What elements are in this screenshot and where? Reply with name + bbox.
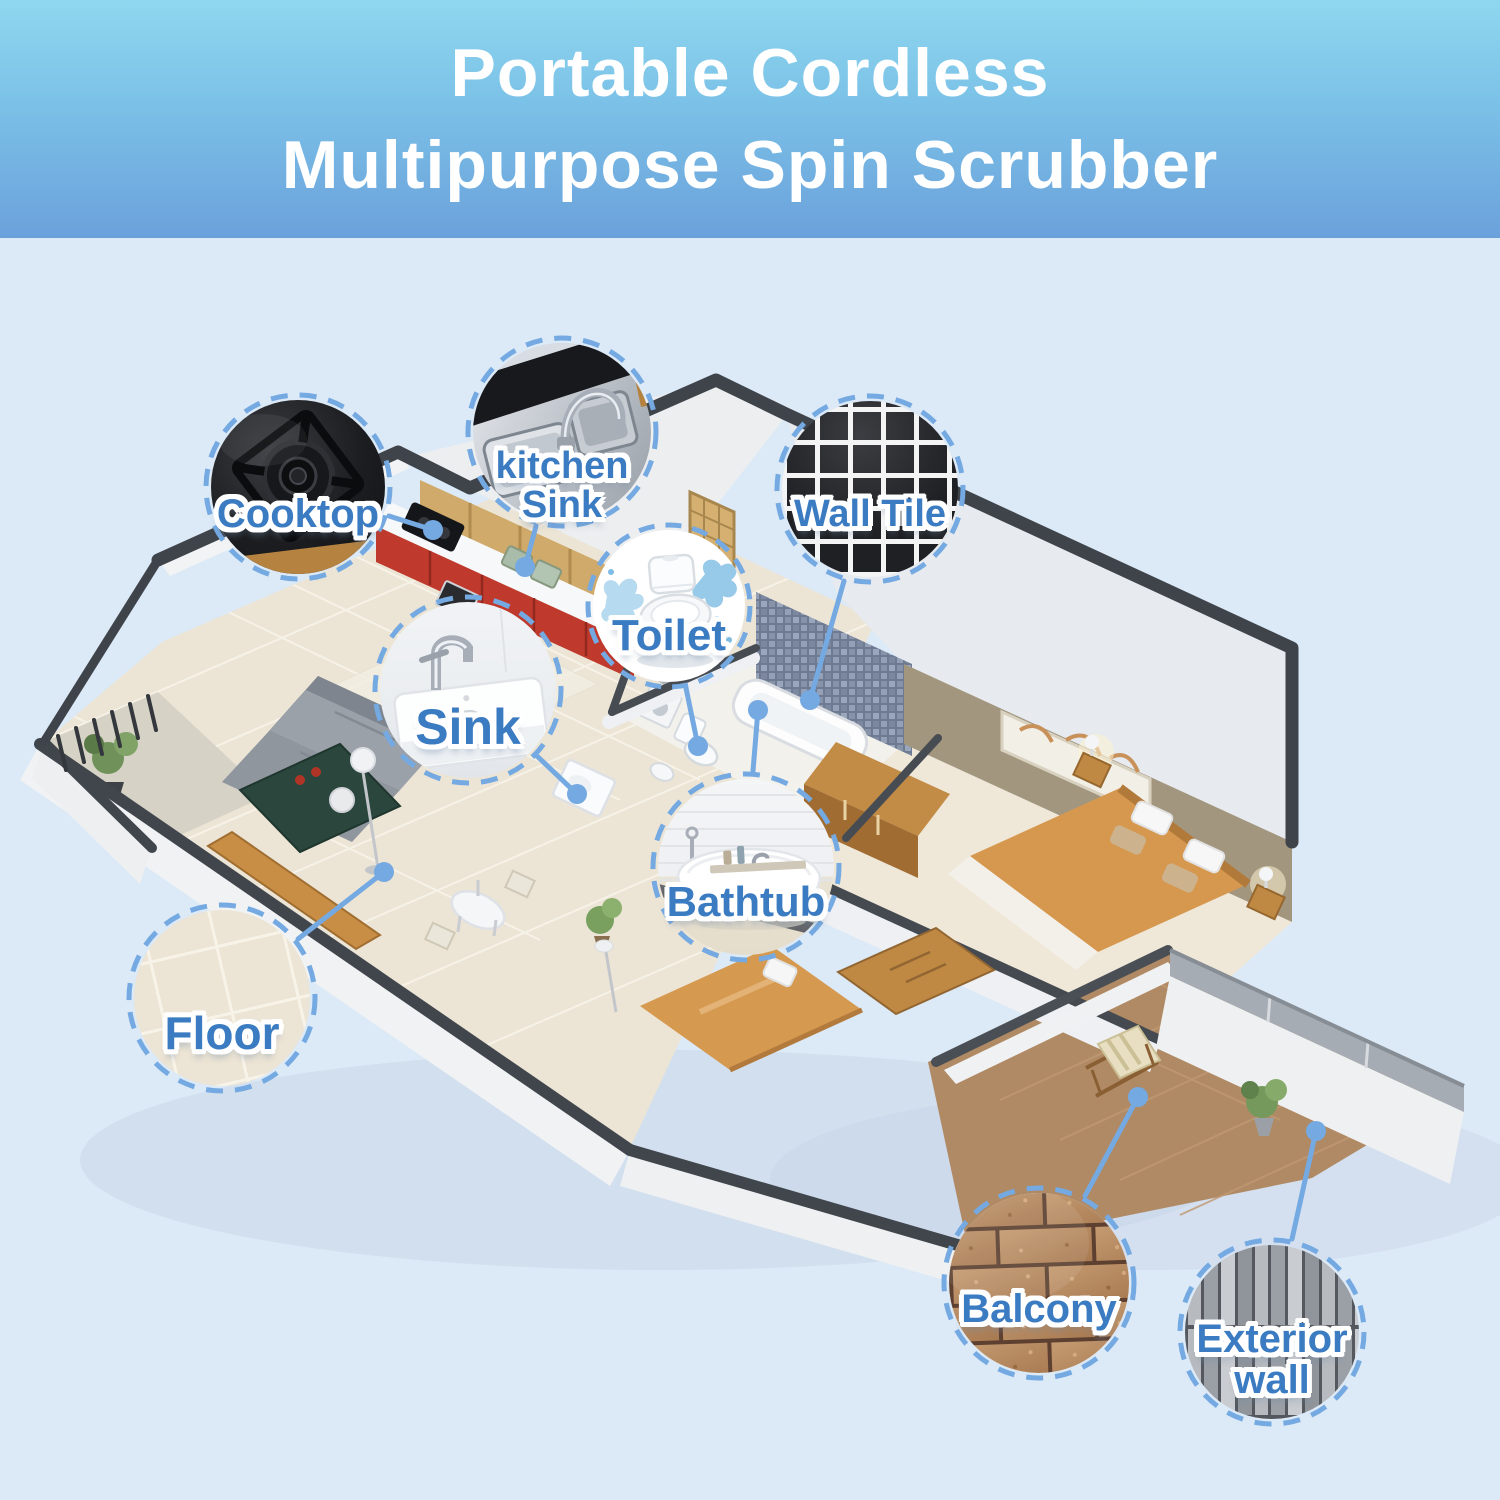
callout-cooktop: Cooktop (203, 392, 393, 582)
callout-balcony: Balcony (941, 1185, 1137, 1381)
callout-floor: Floor (126, 902, 318, 1094)
sink-label: Sink (372, 702, 564, 753)
callout-sink: Sink (372, 594, 564, 786)
callout-exterior-wall: Exterior wall (1177, 1237, 1367, 1427)
wall-tile-photo (782, 401, 958, 577)
callout-toilet: Toilet (585, 522, 753, 690)
floor-photo (134, 910, 310, 1086)
wall-tile-label: Wall Tile (774, 495, 966, 534)
cooktop-label: Cooktop (203, 494, 393, 535)
balcony-photo (949, 1193, 1129, 1373)
kitchen-sink-label: kitchen Sink (465, 447, 659, 525)
callout-wall-tile: Wall Tile (774, 393, 966, 585)
bathtub-icon (658, 779, 834, 955)
cooktop-photo (211, 400, 385, 574)
toilet-label: Toilet (585, 614, 753, 659)
bathtub-photo (658, 779, 834, 955)
callout-kitchen-sink: kitchen Sink (465, 335, 659, 529)
exterior-wall-label: Exterior wall (1177, 1319, 1367, 1401)
product-infographic: Portable Cordless Multipurpose Spin Scru… (0, 0, 1500, 1500)
floor-label: Floor (126, 1010, 318, 1057)
balcony-label: Balcony (941, 1289, 1137, 1330)
balcony-brick-texture (949, 1193, 1129, 1373)
callout-bathtub: Bathtub (650, 771, 842, 963)
bathtub-label: Bathtub (650, 881, 842, 924)
